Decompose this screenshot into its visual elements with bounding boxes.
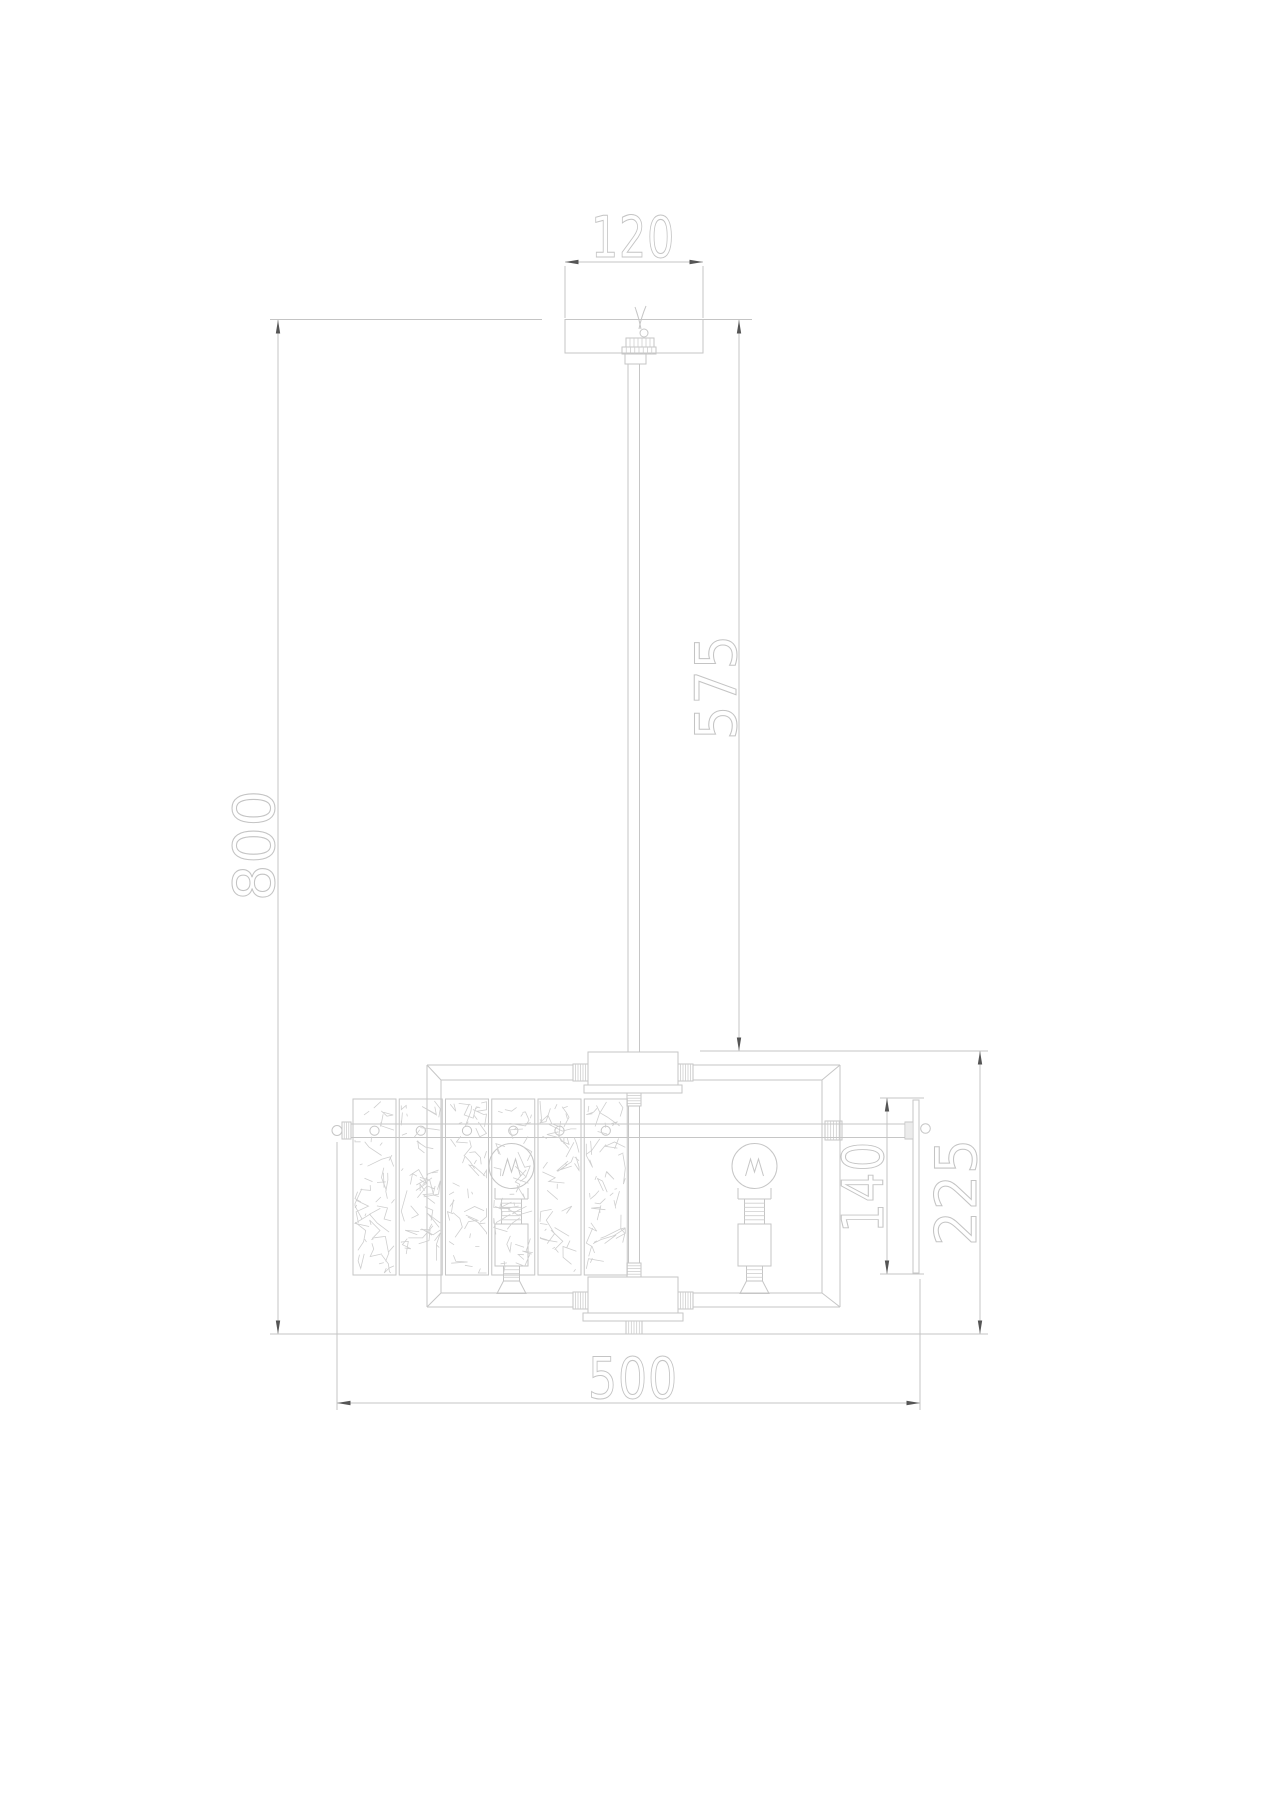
crystal-texture-line (464, 1207, 484, 1212)
crystal-texture-tick (553, 1247, 556, 1249)
crystal-texture-line (598, 1179, 608, 1193)
crystal-texture-line (410, 1174, 417, 1185)
crystal-texture-line (448, 1212, 454, 1221)
threaded-coupler (627, 1093, 641, 1106)
suspension-cable-detail (622, 306, 656, 354)
crystal-texture-line (419, 1230, 430, 1244)
hub-side-knob-ribs (681, 1064, 691, 1081)
crystal-texture-line (355, 1140, 361, 1142)
arrowhead-right (907, 1401, 921, 1405)
crystal-texture-line (374, 1236, 394, 1252)
finial-knob-ribs (629, 1321, 640, 1334)
dimension-body-height: 225 (924, 1051, 990, 1334)
crystal-texture-line (591, 1141, 592, 1155)
crystal-texture-tick (365, 1239, 367, 1242)
crystal-texture-line (386, 1173, 388, 1199)
hub-side-knob-ribs (576, 1292, 586, 1309)
ceiling-canopy (565, 320, 703, 354)
crystal-texture-tick (498, 1111, 503, 1113)
crystal-texture-tick (595, 1176, 596, 1180)
crystal-texture-line (557, 1161, 572, 1171)
threaded-coupler (627, 1263, 641, 1277)
arrowhead-up (978, 1051, 982, 1065)
dimension-overall-height: 800 (222, 320, 288, 1334)
crystal-texture-tick (610, 1193, 613, 1196)
crystal-texture-line (600, 1145, 606, 1153)
crystal-texture-line (523, 1147, 531, 1161)
crystal-texture-line (589, 1223, 597, 1231)
crystal-texture-line (479, 1223, 486, 1224)
crystal-texture-tick (555, 1104, 557, 1109)
arrowhead-down (978, 1321, 982, 1335)
crystal-texture-line (453, 1213, 462, 1238)
bar-end-knob-right (921, 1124, 931, 1134)
crystal-texture-line (517, 1185, 525, 1199)
side-end-plate (913, 1100, 919, 1273)
crystal-texture-line (597, 1102, 607, 1113)
rod-collar (625, 353, 646, 364)
frame-chamfer (822, 1293, 840, 1307)
crystal-panel (446, 1099, 489, 1275)
crystal-texture-tick (459, 1123, 462, 1124)
crystal-texture-line (623, 1154, 625, 1184)
bar-bead (370, 1126, 379, 1135)
dimension-canopy-width: 120 (565, 205, 703, 318)
hub-flange (583, 1313, 683, 1321)
crystal-texture-line (464, 1104, 476, 1118)
crystal-texture-line (450, 1104, 456, 1112)
crystal-texture-line (605, 1172, 614, 1180)
crystal-texture-line (382, 1255, 391, 1273)
crystal-texture-line (586, 1139, 600, 1155)
crystal-texture-line (422, 1107, 437, 1115)
crystal-texture-line (365, 1178, 373, 1181)
crystal-texture-line (451, 1255, 467, 1263)
crystal-texture-line (401, 1113, 402, 1126)
drawing-canvas: 120 575 800 (0, 0, 1273, 1800)
dim-label-575: 575 (684, 634, 750, 740)
top-hub (573, 1052, 693, 1106)
crystal-texture-tick (523, 1112, 526, 1113)
socket-cup (495, 1224, 528, 1266)
cable-wire (639, 306, 646, 329)
crystal-texture-tick (449, 1242, 454, 1245)
hub-side-knob-ribs (681, 1292, 691, 1309)
crystal-texture-line (370, 1220, 380, 1239)
crystal-texture-line (425, 1207, 433, 1221)
hub-box (588, 1277, 678, 1313)
bulb-glass (732, 1144, 777, 1189)
crystal-texture-line (500, 1198, 503, 1221)
crystal-texture-line (365, 1142, 382, 1156)
cable-clamp-ribs (630, 338, 650, 347)
arrowhead-down (276, 1321, 280, 1335)
crystal-texture-line (542, 1172, 564, 1183)
bottom-hub (573, 1277, 693, 1334)
crystal-texture-line (377, 1206, 391, 1221)
center-column (627, 1106, 641, 1277)
crystal-texture-line (401, 1105, 406, 1110)
crystal-texture-line (358, 1254, 364, 1269)
crystal-texture-tick (472, 1192, 473, 1195)
crystal-texture-line (381, 1114, 394, 1130)
crystal-texture-tick (391, 1199, 394, 1203)
crystal-texture-line (595, 1199, 606, 1204)
crystal-texture-tick (365, 1214, 366, 1216)
crystal-texture-line (401, 1168, 403, 1170)
dim-label-500: 500 (588, 1346, 678, 1412)
crystal-texture-line (591, 1207, 605, 1220)
crystal-texture-tick (555, 1249, 558, 1253)
socket-cup (738, 1224, 771, 1266)
arrowhead-up (885, 1098, 889, 1112)
crystal-texture-line (463, 1156, 475, 1168)
crystal-texture-line (558, 1157, 574, 1172)
bar-end-knob-left (332, 1126, 342, 1136)
crystal-texture-line (355, 1222, 366, 1250)
frame-chamfer (822, 1065, 840, 1080)
crystal-texture-line (546, 1211, 554, 1243)
hub-side-knob-ribs (576, 1064, 586, 1081)
crystal-texture-tick (360, 1164, 363, 1165)
crystal-texture-line (590, 1191, 599, 1200)
crystal-texture-line (518, 1255, 524, 1260)
crystal-texture-line (465, 1265, 473, 1266)
frame (427, 1065, 842, 1307)
crystal-panels (353, 1099, 627, 1275)
crystal-texture-line (505, 1107, 517, 1111)
crystal-texture-line (593, 1235, 616, 1244)
crystal-texture-line (376, 1197, 381, 1202)
crystal-texture-line (402, 1239, 411, 1249)
socket-cone (740, 1281, 769, 1294)
frame-chamfer (427, 1293, 441, 1307)
crystal-panel (538, 1099, 581, 1275)
crystal-texture-tick (574, 1269, 576, 1272)
arrowhead-up (737, 320, 741, 334)
bar-end-cap-ribs (907, 1122, 911, 1139)
screw-base (502, 1199, 522, 1224)
crystal-texture-line (563, 1247, 576, 1265)
crystal-texture-tick (379, 1263, 384, 1264)
crystal-texture-line (543, 1162, 548, 1168)
crystal-texture-line (540, 1101, 542, 1122)
lamp-right (732, 1144, 777, 1294)
bar-bead (462, 1126, 471, 1135)
canopy-plate (565, 320, 703, 354)
cable-screw (640, 329, 648, 337)
crystal-texture-line (501, 1263, 507, 1264)
crystal-texture-line (494, 1168, 501, 1177)
crystal-texture-tick (600, 1205, 601, 1209)
arrowhead-left (337, 1401, 351, 1405)
crystal-texture-line (589, 1246, 592, 1256)
crystal-texture-line (355, 1214, 371, 1227)
crystal-texture-tick (474, 1160, 476, 1164)
crystal-texture-line (370, 1243, 382, 1256)
crystal-texture-line (469, 1165, 485, 1176)
crystal-texture-tick (530, 1115, 531, 1119)
crystal-texture-line (547, 1190, 558, 1199)
crystal-texture-line (566, 1142, 574, 1157)
crystal-texture-line (355, 1189, 362, 1219)
crystal-texture-tick (521, 1113, 523, 1116)
crystal-texture-line (615, 1191, 619, 1206)
crystal-texture-line (494, 1200, 519, 1208)
threaded-coupler-ribs (627, 1266, 641, 1274)
hub-flange (584, 1085, 682, 1093)
crystal-texture-line (374, 1102, 381, 1109)
crystal-texture-line (435, 1233, 441, 1261)
pendant-lamp-drawing: 120 575 800 (0, 0, 1273, 1800)
crystal-texture-line (428, 1213, 441, 1227)
arrowhead-right (690, 260, 704, 264)
crystal-texture-tick (402, 1133, 407, 1135)
suspension-rod (625, 353, 646, 1052)
crystal-texture-line (411, 1206, 419, 1219)
crystal-texture-line (588, 1106, 589, 1112)
crystal-texture-line (586, 1259, 604, 1269)
crystal-texture-line (451, 1200, 453, 1213)
crystal-texture-line (377, 1182, 386, 1183)
frame-chamfer (427, 1065, 441, 1080)
arrowhead-up (276, 320, 280, 334)
crystal-texture-tick (371, 1239, 373, 1240)
crystal-texture-line (468, 1189, 469, 1199)
crystal-texture-tick (470, 1233, 471, 1238)
crystal-texture-line (515, 1244, 524, 1247)
bulb-filament (746, 1159, 764, 1176)
crystal-texture-line (386, 1253, 389, 1262)
crystal-texture-line (451, 1139, 456, 1147)
crystal-texture-line (478, 1269, 486, 1274)
dim-label-120: 120 (591, 205, 675, 271)
crystal-texture-tick (380, 1143, 382, 1146)
arrowhead-down (737, 1038, 741, 1052)
crystal-texture-line (507, 1236, 512, 1252)
crystal-texture-line (562, 1206, 572, 1213)
threaded-coupler-ribs (627, 1096, 641, 1104)
arrowhead-down (885, 1261, 889, 1275)
lamp-left (489, 1144, 534, 1294)
crystal-texture-line (453, 1183, 460, 1187)
crystal-texture-tick (449, 1192, 454, 1195)
crystal-texture-line (483, 1170, 486, 1178)
screw-base (745, 1199, 765, 1224)
socket-nipple (504, 1266, 520, 1281)
crystal-texture-line (474, 1115, 478, 1120)
crystal-texture-line (450, 1200, 454, 1206)
crystal-texture-line (555, 1228, 570, 1237)
bulb-filament (503, 1159, 521, 1176)
crystal-texture-tick (407, 1114, 408, 1117)
crystal-texture-tick (618, 1153, 623, 1155)
crystal-texture-line (401, 1190, 407, 1221)
crystal-texture-line (574, 1137, 579, 1152)
crystal-texture-line (551, 1230, 563, 1250)
socket-cone (497, 1281, 526, 1294)
crystal-texture-line (364, 1111, 369, 1115)
dimension-rod-length: 575 (684, 320, 750, 1051)
crystal-texture-line (477, 1102, 487, 1112)
bar-end-cap-ribs (344, 1122, 349, 1139)
crystal-texture-line (484, 1151, 486, 1158)
crystal-texture-line (405, 1230, 419, 1235)
crystal-texture-line (586, 1144, 592, 1168)
bulb-glass (489, 1144, 534, 1189)
crystal-texture-line (567, 1241, 570, 1248)
crystal-texture-tick (615, 1189, 618, 1190)
hub-box (588, 1052, 678, 1085)
crystal-texture-line (619, 1102, 623, 1117)
crystal-texture-line (540, 1224, 547, 1225)
crystal-texture-line (383, 1173, 384, 1188)
arrowhead-left (565, 260, 579, 264)
crystal-texture-line (410, 1170, 427, 1191)
crystal-texture-tick (545, 1229, 547, 1231)
socket-nipple (747, 1266, 763, 1281)
crystal-texture-line (613, 1228, 625, 1238)
crystal-texture-line (465, 1215, 478, 1229)
